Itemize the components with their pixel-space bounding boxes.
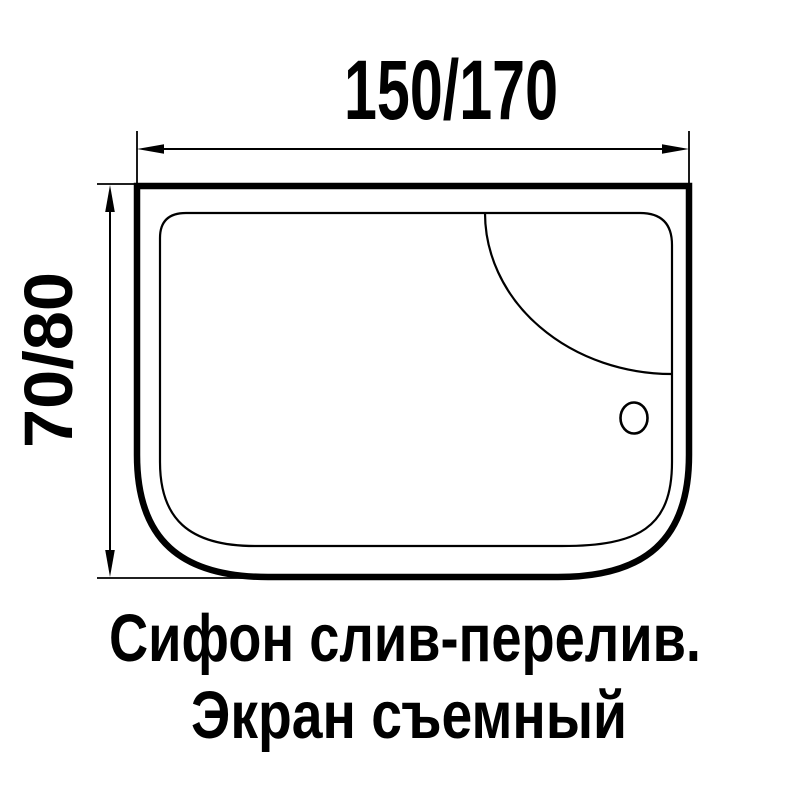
corner-seat-arc	[485, 213, 672, 374]
drain-hole-icon	[621, 403, 648, 434]
drawing-canvas: 150/170 70/80 Сифон слив-перелив. Экран …	[0, 0, 800, 800]
tub-outer-rim	[137, 186, 689, 577]
arrow-right-icon	[662, 144, 689, 154]
width-dimension-label: 150/170	[344, 43, 558, 137]
tub-inner-basin	[160, 213, 672, 546]
arrow-up-icon	[105, 185, 115, 212]
arrow-left-icon	[137, 144, 164, 154]
height-dimension-label: 70/80	[10, 272, 87, 448]
arrow-down-icon	[105, 550, 115, 577]
bathtub-top-view-diagram: 150/170 70/80 Сифон слив-перелив. Экран …	[0, 0, 800, 800]
caption-line-1: Сифон слив-перелив.	[109, 601, 701, 676]
caption-line-2: Экран съемный	[191, 678, 627, 753]
